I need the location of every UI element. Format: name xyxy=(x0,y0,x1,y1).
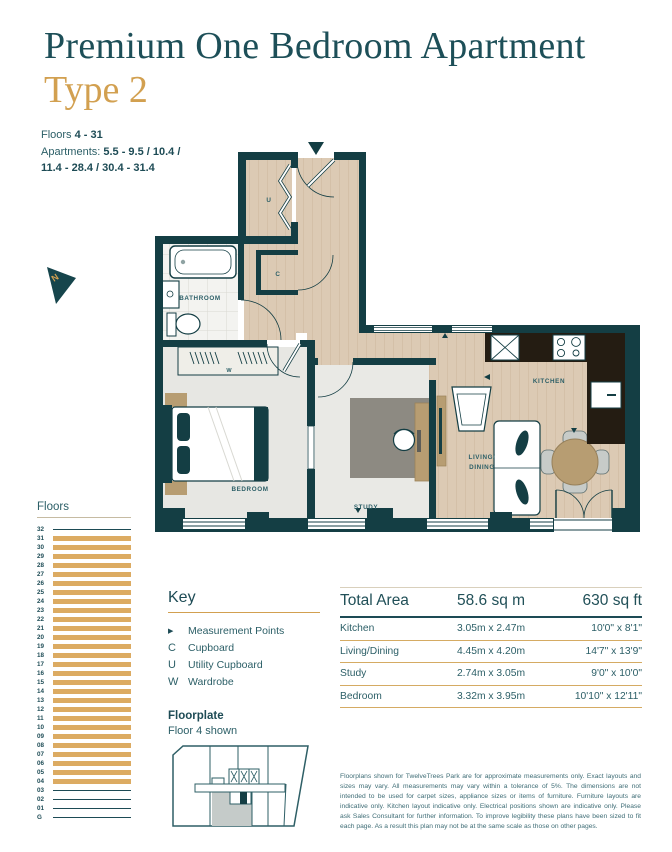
floor-number: 22 xyxy=(37,616,53,623)
floor-indicator xyxy=(53,635,131,640)
table-row: Bedroom 3.32m x 3.95m 10'10" x 12'11" xyxy=(340,686,642,709)
table-row: Living/Dining 4.45m x 4.20m 14'7" x 13'9… xyxy=(340,641,642,664)
living-label-2: DINING xyxy=(469,464,495,471)
floor-row: 05 xyxy=(37,768,131,777)
key-label: Wardrobe xyxy=(188,676,234,688)
floor-number: 09 xyxy=(37,733,53,740)
key-item: U Utility Cupboard xyxy=(168,656,320,673)
floor-number: 32 xyxy=(37,526,53,533)
areas-table-body: Kitchen 3.05m x 2.47m 10'0" x 8'1" Livin… xyxy=(340,618,642,708)
floorplate-title: Floorplate xyxy=(168,710,328,722)
floorplate-subtitle: Floor 4 shown xyxy=(168,725,328,737)
floor-indicator xyxy=(53,662,131,667)
room-size-imperial: 10'0" x 8'1" xyxy=(550,623,642,634)
key-symbol: W xyxy=(168,676,188,688)
total-area-sqft: 630 sq ft xyxy=(550,592,642,610)
room-size-metric: 2.74m x 3.05m xyxy=(432,668,550,679)
study-label: STUDY xyxy=(354,504,379,511)
page-subtitle: Type 2 xyxy=(44,68,148,112)
floor-indicator xyxy=(53,536,131,541)
areas-table-header: Total Area 58.6 sq m 630 sq ft xyxy=(340,587,642,618)
floor-row: 16 xyxy=(37,669,131,678)
sliding-door xyxy=(308,426,314,469)
bathroom-sink xyxy=(162,281,179,308)
floor-number: 01 xyxy=(37,805,53,812)
floor-indicator xyxy=(53,626,131,631)
floor-number: 04 xyxy=(37,778,53,785)
floor-number: 15 xyxy=(37,679,53,686)
floor-number: 02 xyxy=(37,796,53,803)
floor-indicator xyxy=(53,554,131,559)
kitchen-label: KITCHEN xyxy=(533,378,565,385)
living-label-1: LIVING/ xyxy=(469,454,496,461)
floor-number: 20 xyxy=(37,634,53,641)
floor-number: 14 xyxy=(37,688,53,695)
floor-row: 20 xyxy=(37,633,131,642)
floor-indicator xyxy=(53,698,131,703)
key-item: W Wardrobe xyxy=(168,673,320,690)
floor-number: 23 xyxy=(37,607,53,614)
floor-number: 21 xyxy=(37,625,53,632)
floor-indicator xyxy=(53,617,131,622)
floor-number: 26 xyxy=(37,580,53,587)
floor-number: 18 xyxy=(37,652,53,659)
floor-row: 23 xyxy=(37,606,131,615)
floor-indicator xyxy=(53,599,131,604)
floor-indicator xyxy=(53,644,131,649)
key-symbol: ▶ xyxy=(168,627,188,635)
floor-number: 24 xyxy=(37,598,53,605)
key-item: C Cupboard xyxy=(168,639,320,656)
room-size-metric: 4.45m x 4.20m xyxy=(432,646,550,657)
floor-row: 31 xyxy=(37,534,131,543)
wardrobe: W xyxy=(178,347,278,375)
floor-row: 24 xyxy=(37,597,131,606)
key-label: Measurement Points xyxy=(188,625,284,637)
disclaimer-text: Floorplans shown for TwelveTrees Park ar… xyxy=(340,772,641,832)
floor-indicator xyxy=(53,572,131,577)
floor-number: 28 xyxy=(37,562,53,569)
floor-row: 29 xyxy=(37,552,131,561)
floor-indicator xyxy=(53,734,131,739)
floors-list: 32 31 30 29 28 xyxy=(37,525,131,822)
room-size-imperial: 10'10" x 12'11" xyxy=(550,691,642,702)
desk xyxy=(415,403,429,481)
floor-row: 17 xyxy=(37,660,131,669)
total-area-label: Total Area xyxy=(340,592,432,610)
floor-number: 08 xyxy=(37,742,53,749)
floorplate-diagram xyxy=(168,743,320,829)
key-panel: Key ▶ Measurement Points C Cupboard U Ut… xyxy=(168,589,320,690)
floor-row: 32 xyxy=(37,525,131,534)
floor-row: 22 xyxy=(37,615,131,624)
floor-number: 13 xyxy=(37,697,53,704)
floor-row: 04 xyxy=(37,777,131,786)
floor-indicator xyxy=(53,808,131,809)
floor-number: 05 xyxy=(37,769,53,776)
floor-indicator xyxy=(53,817,131,818)
table-row: Kitchen 3.05m x 2.47m 10'0" x 8'1" xyxy=(340,618,642,641)
floor-indicator xyxy=(53,608,131,613)
page-title: Premium One Bedroom Apartment xyxy=(44,24,586,68)
floor-indicator xyxy=(53,779,131,784)
floor-number: 11 xyxy=(37,715,53,722)
floor-number: 07 xyxy=(37,751,53,758)
floor-indicator xyxy=(53,790,131,791)
floor-row: 11 xyxy=(37,714,131,723)
floor-row: 10 xyxy=(37,723,131,732)
floor-number: 19 xyxy=(37,643,53,650)
floor-indicator xyxy=(53,653,131,658)
floor-row: 08 xyxy=(37,741,131,750)
floor-row: 06 xyxy=(37,759,131,768)
floors-panel: Floors 32 31 30 29 xyxy=(37,501,131,822)
room-name: Study xyxy=(340,668,432,679)
floor-indicator xyxy=(53,761,131,766)
floor-row: 09 xyxy=(37,732,131,741)
areas-table: Total Area 58.6 sq m 630 sq ft Kitchen 3… xyxy=(340,587,642,708)
floor-indicator xyxy=(53,743,131,748)
floor-indicator xyxy=(53,770,131,775)
floor-row: 13 xyxy=(37,696,131,705)
brochure-page: Premium One Bedroom Apartment Type 2 Flo… xyxy=(0,0,672,852)
tv-console xyxy=(437,396,446,466)
floor-indicator xyxy=(53,671,131,676)
room-name: Bedroom xyxy=(340,691,432,702)
key-label: Utility Cupboard xyxy=(188,659,263,671)
room-size-imperial: 14'7" x 13'9" xyxy=(550,646,642,657)
floor-row: 19 xyxy=(37,642,131,651)
floor-row: G xyxy=(37,813,131,822)
floor-number: 03 xyxy=(37,787,53,794)
floor-indicator xyxy=(53,581,131,586)
floor-plan: W xyxy=(150,140,640,545)
floor-number: G xyxy=(37,814,53,821)
floor-row: 27 xyxy=(37,570,131,579)
floor-indicator xyxy=(53,529,131,530)
floor-number: 27 xyxy=(37,571,53,578)
floor-row: 28 xyxy=(37,561,131,570)
floor-number: 29 xyxy=(37,553,53,560)
floor-row: 30 xyxy=(37,543,131,552)
floor-row: 26 xyxy=(37,579,131,588)
bedroom-label: BEDROOM xyxy=(231,486,268,493)
key-title: Key xyxy=(168,589,320,613)
bathtub xyxy=(170,246,236,278)
floor-indicator xyxy=(53,725,131,730)
bathroom-label: BATHROOM xyxy=(179,295,220,302)
floor-row: 25 xyxy=(37,588,131,597)
floor-number: 25 xyxy=(37,589,53,596)
floor-indicator xyxy=(53,545,131,550)
key-label: Cupboard xyxy=(188,642,234,654)
floor-row: 01 xyxy=(37,804,131,813)
north-arrow-icon: N xyxy=(33,261,79,312)
floor-number: 10 xyxy=(37,724,53,731)
floor-indicator xyxy=(53,689,131,694)
room-size-metric: 3.05m x 2.47m xyxy=(432,623,550,634)
floors-panel-title: Floors xyxy=(37,501,131,518)
floor-indicator xyxy=(53,716,131,721)
floor-row: 12 xyxy=(37,705,131,714)
floor-indicator xyxy=(53,590,131,595)
floor-number: 06 xyxy=(37,760,53,767)
toilet xyxy=(167,313,200,336)
floor-indicator xyxy=(53,752,131,757)
sofa xyxy=(494,421,540,515)
floor-indicator xyxy=(53,799,131,800)
floor-number: 17 xyxy=(37,661,53,668)
key-list: ▶ Measurement Points C Cupboard U Utilit… xyxy=(168,622,320,690)
floor-row: 14 xyxy=(37,687,131,696)
floor-row: 03 xyxy=(37,786,131,795)
floor-indicator xyxy=(53,563,131,568)
floor-indicator xyxy=(53,707,131,712)
wardrobe-label: W xyxy=(226,368,232,374)
armchair xyxy=(452,387,491,431)
floor-number: 16 xyxy=(37,670,53,677)
floor-row: 02 xyxy=(37,795,131,804)
floor-number: 31 xyxy=(37,535,53,542)
table-row: Study 2.74m x 3.05m 9'0" x 10'0" xyxy=(340,663,642,686)
key-symbol: C xyxy=(168,642,188,654)
total-area-sqm: 58.6 sq m xyxy=(432,592,550,610)
entrance-arrow-icon xyxy=(308,142,324,155)
room-size-metric: 3.32m x 3.95m xyxy=(432,691,550,702)
room-name: Kitchen xyxy=(340,623,432,634)
floor-number: 12 xyxy=(37,706,53,713)
key-symbol: U xyxy=(168,659,188,671)
floor-row: 07 xyxy=(37,750,131,759)
utility-cupboard-label: U xyxy=(266,197,271,204)
cupboard-label: C xyxy=(275,271,280,278)
floor-number: 30 xyxy=(37,544,53,551)
floor-indicator xyxy=(53,680,131,685)
floor-row: 15 xyxy=(37,678,131,687)
key-item: ▶ Measurement Points xyxy=(168,622,320,639)
bed xyxy=(163,393,268,495)
floor-row: 18 xyxy=(37,651,131,660)
desk-chair xyxy=(394,429,415,450)
floorplate-panel: Floorplate Floor 4 shown xyxy=(168,710,328,834)
room-name: Living/Dining xyxy=(340,646,432,657)
room-size-imperial: 9'0" x 10'0" xyxy=(550,668,642,679)
floor-row: 21 xyxy=(37,624,131,633)
